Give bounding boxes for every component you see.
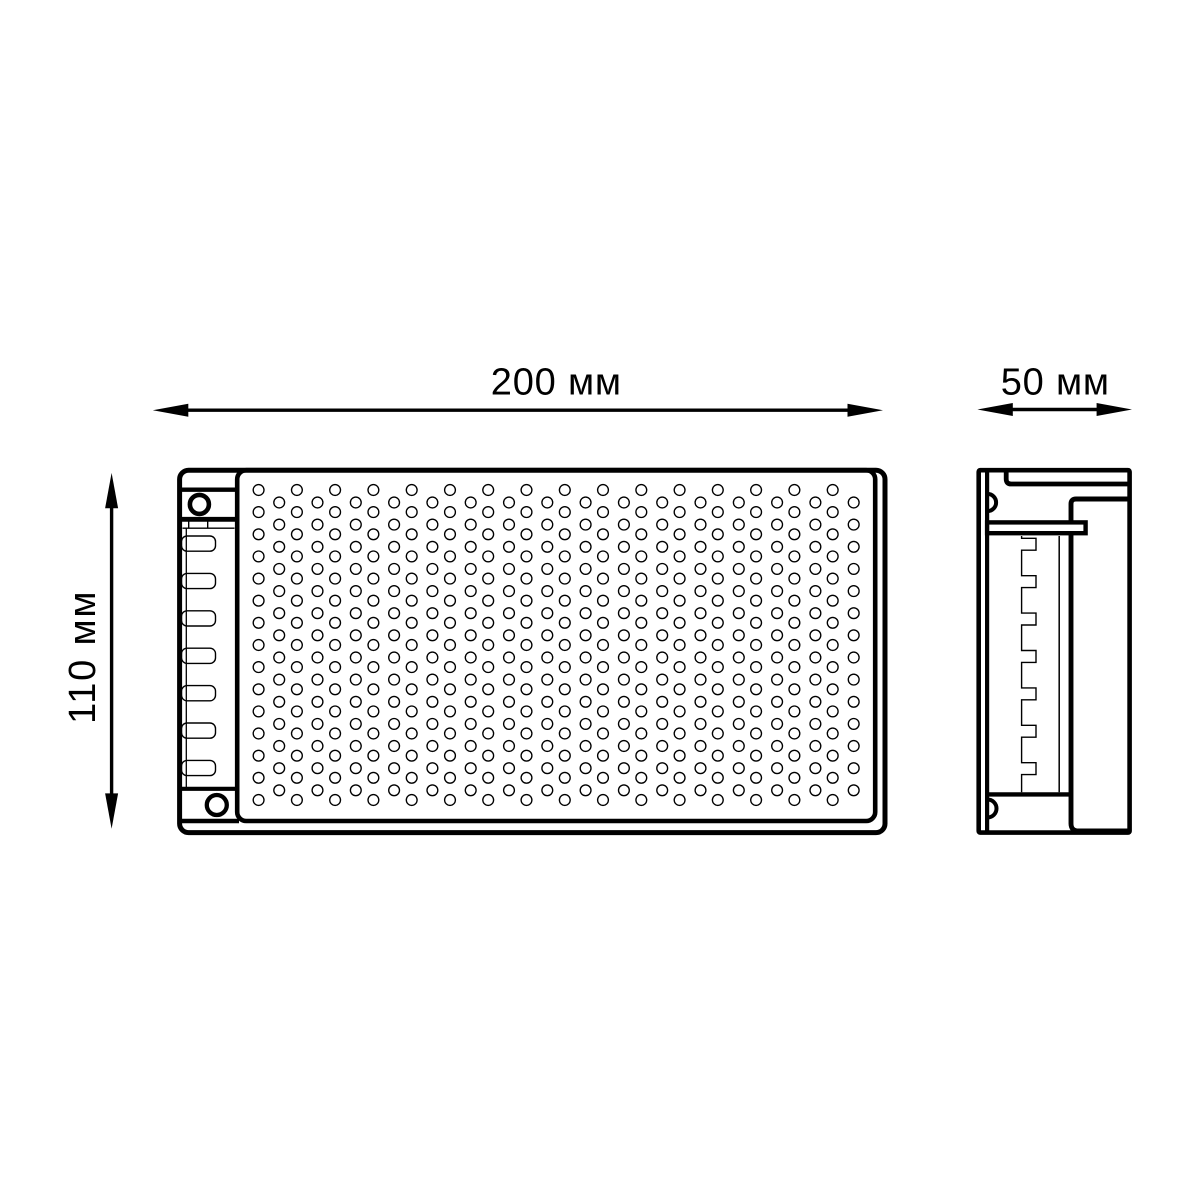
svg-text:200 мм: 200 мм [491,362,622,404]
svg-text:50 мм: 50 мм [1001,362,1110,404]
svg-text:110 мм: 110 мм [62,590,104,724]
